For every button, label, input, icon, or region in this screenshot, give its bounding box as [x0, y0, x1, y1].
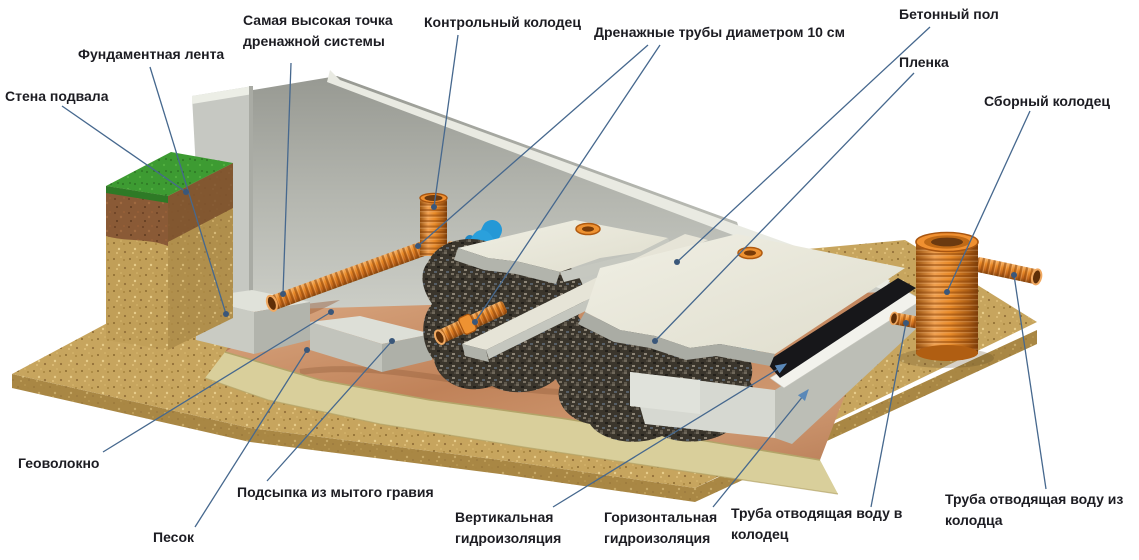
label-collection-well: Сборный колодец	[984, 91, 1110, 112]
label-basement-wall: Стена подвала	[5, 86, 108, 107]
label-gravel-bed: Подсыпка из мытого гравия	[237, 482, 434, 503]
label-control-well: Контрольный колодец	[424, 12, 581, 33]
label-geotextile: Геоволокно	[18, 453, 99, 474]
leader-concrete-floor	[677, 27, 930, 262]
label-sand: Песок	[153, 527, 194, 548]
label-pipe-from-well: Труба отводящая воду из колодца	[945, 489, 1123, 531]
label-drainage-pipes: Дренажные трубы диаметром 10 см	[594, 22, 845, 43]
label-vertical-waterproofing: Вертикальная гидроизоляция	[455, 507, 561, 549]
label-concrete-floor: Бетонный пол	[899, 4, 999, 25]
diagram-illustration	[0, 0, 1139, 560]
label-pipe-to-well: Труба отводящая воду в колодец	[731, 503, 902, 545]
label-highest-point: Самая высокая точка дренажной системы	[243, 10, 393, 52]
drainage-diagram: Стена подвала Фундаментная лента Самая в…	[0, 0, 1139, 560]
label-foundation-strip: Фундаментная лента	[78, 44, 224, 65]
leader-pipe-from-well	[1014, 275, 1046, 489]
label-horizontal-waterproofing: Горизонтальная гидроизоляция	[604, 507, 717, 549]
label-film: Пленка	[899, 52, 949, 73]
soil-column-graphic	[106, 152, 233, 350]
